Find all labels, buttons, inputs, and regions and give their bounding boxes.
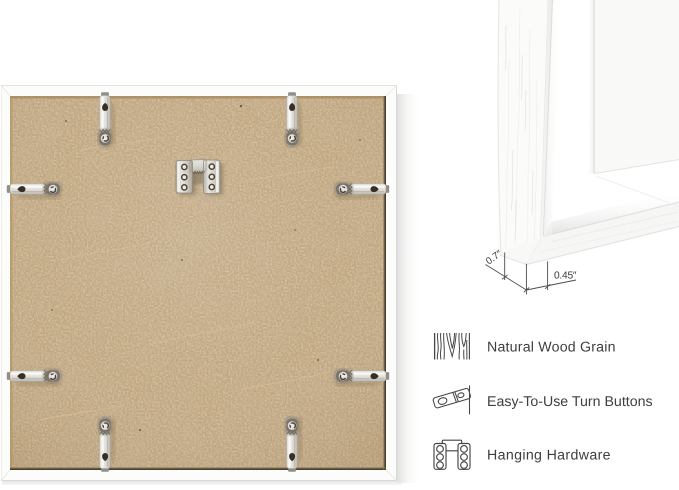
svg-text:0.45″: 0.45″ (554, 270, 577, 281)
svg-text:Easy-To-Use Turn Buttons: Easy-To-Use Turn Buttons (487, 394, 653, 410)
svg-text:Natural Wood Grain: Natural Wood Grain (487, 339, 616, 355)
svg-text:Hanging Hardware: Hanging Hardware (487, 447, 611, 463)
